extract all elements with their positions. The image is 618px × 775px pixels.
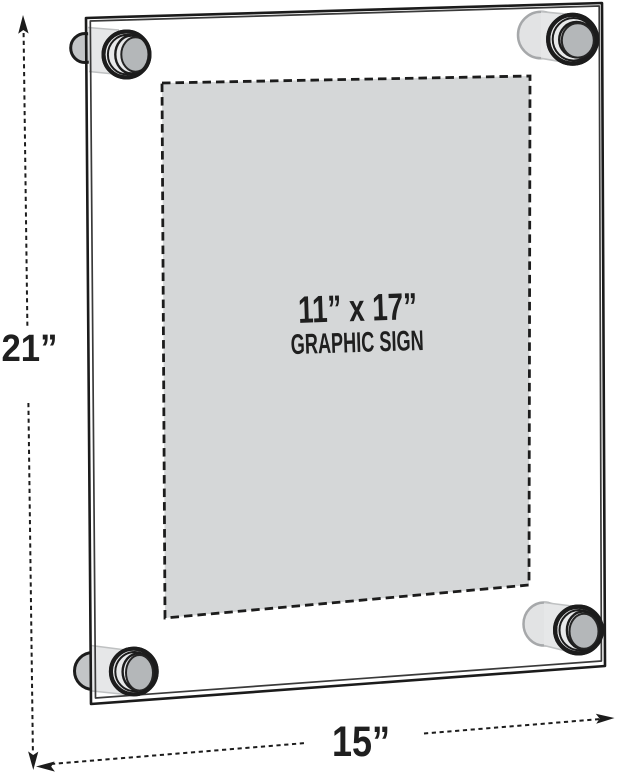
svg-text:15”: 15” [332, 718, 390, 766]
svg-text:21”: 21” [2, 328, 58, 370]
svg-text:GRAPHIC SIGN: GRAPHIC SIGN [290, 325, 424, 361]
